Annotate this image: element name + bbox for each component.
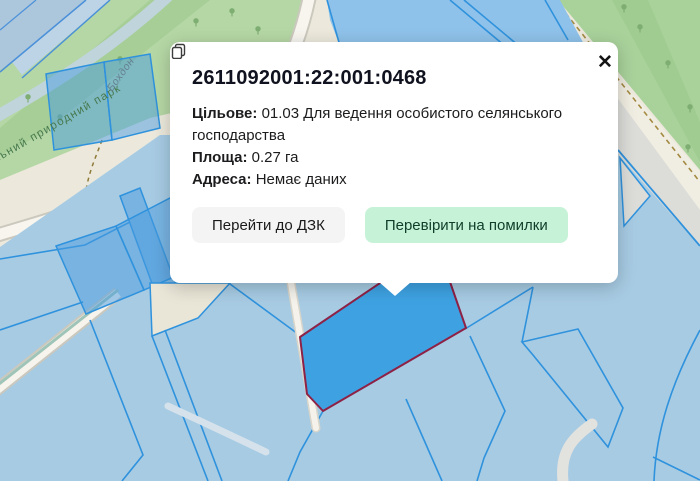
field-address-value: Немає даних <box>256 171 347 188</box>
field-area-value: 0.27 га <box>252 149 299 166</box>
field-address: Адреса: Немає даних <box>192 169 594 191</box>
check-errors-button[interactable]: Перевірити на помилки <box>365 207 568 243</box>
go-to-dzk-button[interactable]: Перейти до ДЗК <box>192 207 345 243</box>
field-area-label: Площа: <box>192 149 247 166</box>
top-parcels-strip <box>327 0 585 46</box>
field-purpose-label: Цільове: <box>192 105 257 122</box>
map-screen: національний природний парк Бохдон ✕ 261… <box>0 0 700 481</box>
parcel-fields: Цільове: 01.03 Для ведення особистого се… <box>192 103 594 191</box>
close-icon[interactable]: ✕ <box>592 50 618 76</box>
cadastral-number: 2611092001:22:001:0468 <box>192 67 427 90</box>
field-purpose: Цільове: 01.03 Для ведення особистого се… <box>192 103 594 147</box>
field-area: Площа: 0.27 га <box>192 147 594 169</box>
field-address-label: Адреса: <box>192 171 252 188</box>
popup-title-row: 2611092001:22:001:0468 <box>192 67 594 90</box>
popup-pointer <box>379 282 411 296</box>
popup-actions: Перейти до ДЗК Перевірити на помилки <box>192 207 594 243</box>
parcel-info-popup: ✕ 2611092001:22:001:0468 Цільове: 01.03 … <box>170 42 618 283</box>
